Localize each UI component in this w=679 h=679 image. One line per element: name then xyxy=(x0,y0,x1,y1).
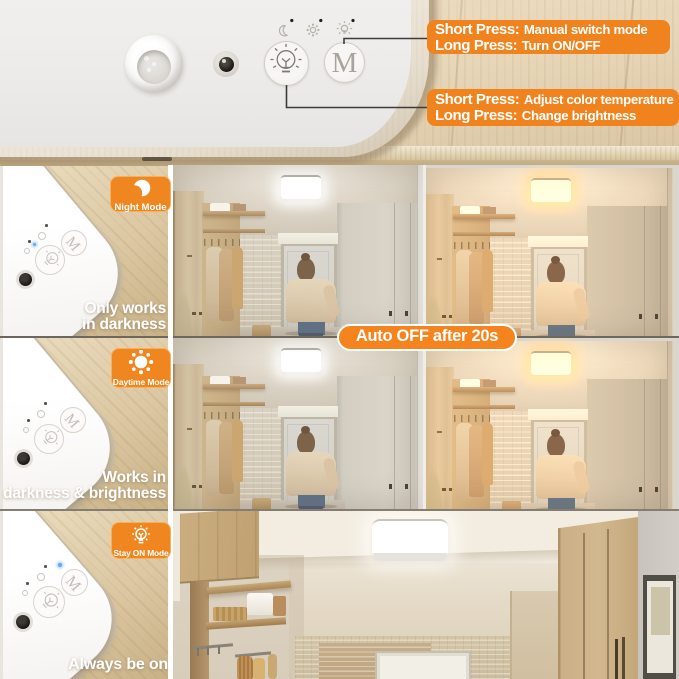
svg-text:M: M xyxy=(61,411,82,432)
svg-text:M: M xyxy=(62,234,83,255)
svg-text:M: M xyxy=(62,573,84,595)
